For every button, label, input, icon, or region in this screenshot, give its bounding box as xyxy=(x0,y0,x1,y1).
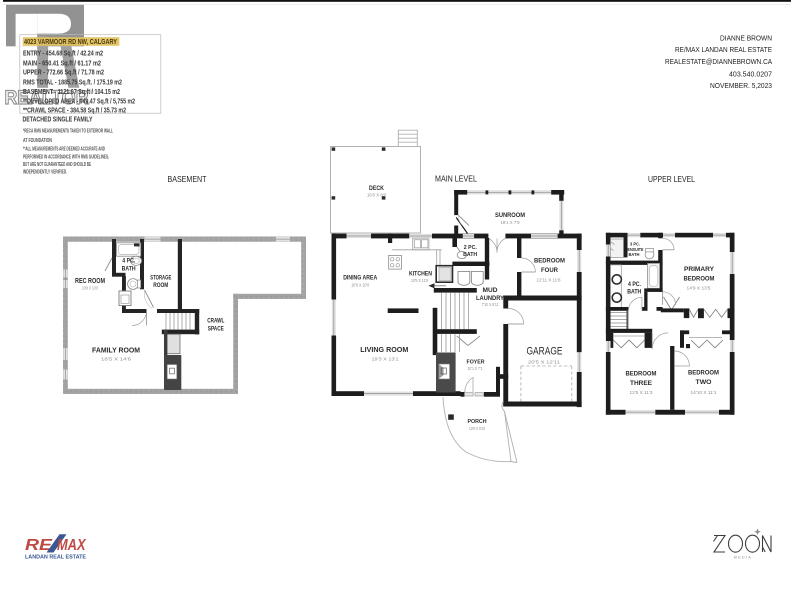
svg-text:7'10 X 6'11: 7'10 X 6'11 xyxy=(482,302,500,307)
svg-text:4 PC.: 4 PC. xyxy=(122,259,135,265)
svg-text:LIVING ROOM: LIVING ROOM xyxy=(360,345,408,354)
svg-text:16'0 X 8'0: 16'0 X 8'0 xyxy=(367,192,387,197)
svg-text:10'8 X 10'0: 10'8 X 10'0 xyxy=(82,286,98,291)
svg-text:FOUR: FOUR xyxy=(541,267,558,274)
svg-text:SUNROOM: SUNROOM xyxy=(495,212,525,219)
svg-text:BEDROOM: BEDROOM xyxy=(626,370,657,377)
svg-text:THREE: THREE xyxy=(630,380,652,387)
svg-text:BEDROOM: BEDROOM xyxy=(534,258,565,265)
svg-text:**CRAWL SPACE - 384.58 Sq.ft /: **CRAWL SPACE - 384.58 Sq.ft / 35.73 m2 xyxy=(23,108,126,115)
svg-text:NOVEMBER. 5,2023: NOVEMBER. 5,2023 xyxy=(710,81,772,90)
svg-text:DETACHED SINGLE FAMILY: DETACHED SINGLE FAMILY xyxy=(23,115,93,124)
svg-text:BASEMENT: BASEMENT xyxy=(168,175,207,184)
svg-text:DINING AREA: DINING AREA xyxy=(343,274,377,281)
svg-text:10'5 X 11'9: 10'5 X 11'9 xyxy=(411,278,429,283)
svg-text:10'1 X 7'1: 10'1 X 7'1 xyxy=(468,366,484,371)
svg-text:12'5 X 11'3: 12'5 X 11'3 xyxy=(630,390,654,395)
svg-text:20'5 X 12'11: 20'5 X 12'11 xyxy=(528,360,561,365)
svg-text:*RECA RMS MEASUREMENTS TAKEN T: *RECA RMS MEASUREMENTS TAKEN TO EXTERIOR… xyxy=(23,129,113,135)
svg-text:BEDROOM: BEDROOM xyxy=(684,276,715,283)
svg-text:BATH: BATH xyxy=(122,267,136,273)
svg-text:**ALL MEASUREMENTS ARE DEEMED: **ALL MEASUREMENTS ARE DEEMED ACCURATE A… xyxy=(23,147,105,153)
svg-text:3 PC.: 3 PC. xyxy=(630,241,640,246)
svg-text:FAMILY ROOM: FAMILY ROOM xyxy=(92,345,140,354)
svg-text:STORAGE: STORAGE xyxy=(150,275,171,282)
svg-text:19'1 X 7'9: 19'1 X 7'9 xyxy=(501,220,521,225)
svg-text:**DEVELOPED AREA - 949.47 Sq.f: **DEVELOPED AREA - 949.47 Sq.ft / 5,755 … xyxy=(23,98,135,105)
svg-text:MEDIA: MEDIA xyxy=(734,556,752,560)
svg-text:INDEPENDENTLY VERIFIED.: INDEPENDENTLY VERIFIED. xyxy=(23,170,67,176)
svg-text:BATH: BATH xyxy=(629,252,640,257)
svg-text:MUD: MUD xyxy=(483,287,499,294)
svg-text:UPPER - 772.66 Sq.ft / 71.78 m: UPPER - 772.66 Sq.ft / 71.78 m2 xyxy=(23,70,104,77)
svg-text:4 PC.: 4 PC. xyxy=(628,282,641,288)
svg-text:BEDROOM: BEDROOM xyxy=(688,370,719,377)
svg-text:FOYER: FOYER xyxy=(467,359,486,365)
svg-text:PORCH: PORCH xyxy=(468,419,487,425)
svg-text:2 PC.: 2 PC. xyxy=(464,245,477,251)
svg-text:RMS TOTAL - 1885.75 Sq.ft. / 1: RMS TOTAL - 1885.75 Sq.ft. / 175.19 m2 xyxy=(23,79,122,86)
svg-text:MAX: MAX xyxy=(57,537,87,554)
svg-text:KITCHEN: KITCHEN xyxy=(409,270,432,277)
svg-text:PERFORMED IN ACCORDANCE WITH R: PERFORMED IN ACCORDANCE WITH RMS GUIDELI… xyxy=(23,154,109,160)
svg-text:MAIN LEVEL: MAIN LEVEL xyxy=(435,175,477,184)
svg-text:LAUNDRY: LAUNDRY xyxy=(476,295,505,302)
svg-text:AT FOUNDATION: AT FOUNDATION xyxy=(23,138,52,144)
svg-text:ROOM: ROOM xyxy=(153,282,168,289)
svg-text:SPACE: SPACE xyxy=(208,326,224,333)
svg-text:REC ROOM: REC ROOM xyxy=(75,278,105,285)
svg-text:14'9 X 13'5: 14'9 X 13'5 xyxy=(687,285,712,290)
svg-text:ENSUITE: ENSUITE xyxy=(628,247,644,252)
svg-text:MAIN - 650.41 Sq.ft / 61.17 m2: MAIN - 650.41 Sq.ft / 61.17 m2 xyxy=(23,60,101,67)
svg-text:LANDAN REAL ESTATE: LANDAN REAL ESTATE xyxy=(25,554,86,560)
svg-text:19'3 X 13'1: 19'3 X 13'1 xyxy=(372,357,400,362)
svg-text:DIANNE BROWN: DIANNE BROWN xyxy=(720,34,772,43)
svg-text:DECK: DECK xyxy=(369,185,384,192)
svg-text:12'11 X 11'8: 12'11 X 11'8 xyxy=(537,278,562,283)
svg-text:403.540.0207: 403.540.0207 xyxy=(729,70,772,79)
svg-text:18'5 X 14'6: 18'5 X 14'6 xyxy=(101,356,132,361)
svg-text:BASEMENT - 1121.07 Sq.ft / 104: BASEMENT - 1121.07 Sq.ft / 104.15 m2 xyxy=(23,89,120,96)
svg-text:TWO: TWO xyxy=(696,379,712,386)
svg-text:GARAGE: GARAGE xyxy=(527,346,563,358)
svg-text:RE/MAX LANDAN REAL ESTATE: RE/MAX LANDAN REAL ESTATE xyxy=(675,45,772,54)
svg-text:4023 VARMOOR RD NW, CALGARY: 4023 VARMOOR RD NW, CALGARY xyxy=(24,37,117,46)
svg-text:BUT ARE NOT GUARANTEED AND SHO: BUT ARE NOT GUARANTEED AND SHOULD BE xyxy=(23,162,91,168)
svg-text:PRIMARY: PRIMARY xyxy=(684,266,714,273)
svg-text:CRAWL: CRAWL xyxy=(207,317,224,324)
svg-text:REALESTATE@DIANNEBROWN.CA: REALESTATE@DIANNEBROWN.CA xyxy=(665,57,773,66)
svg-text:ENTRY - 454.68 Sq.ft / 42.24 m: ENTRY - 454.68 Sq.ft / 42.24 m2 xyxy=(23,50,103,57)
svg-text:BATH: BATH xyxy=(463,252,477,258)
svg-text:UPPER LEVEL: UPPER LEVEL xyxy=(648,175,695,184)
svg-text:14'10 X 11'1: 14'10 X 11'1 xyxy=(691,390,718,395)
svg-text:BATH: BATH xyxy=(627,289,641,295)
svg-text:13'8 X 9'10: 13'8 X 9'10 xyxy=(469,426,486,431)
svg-text:10'8 X 10'0: 10'8 X 10'0 xyxy=(351,282,370,287)
